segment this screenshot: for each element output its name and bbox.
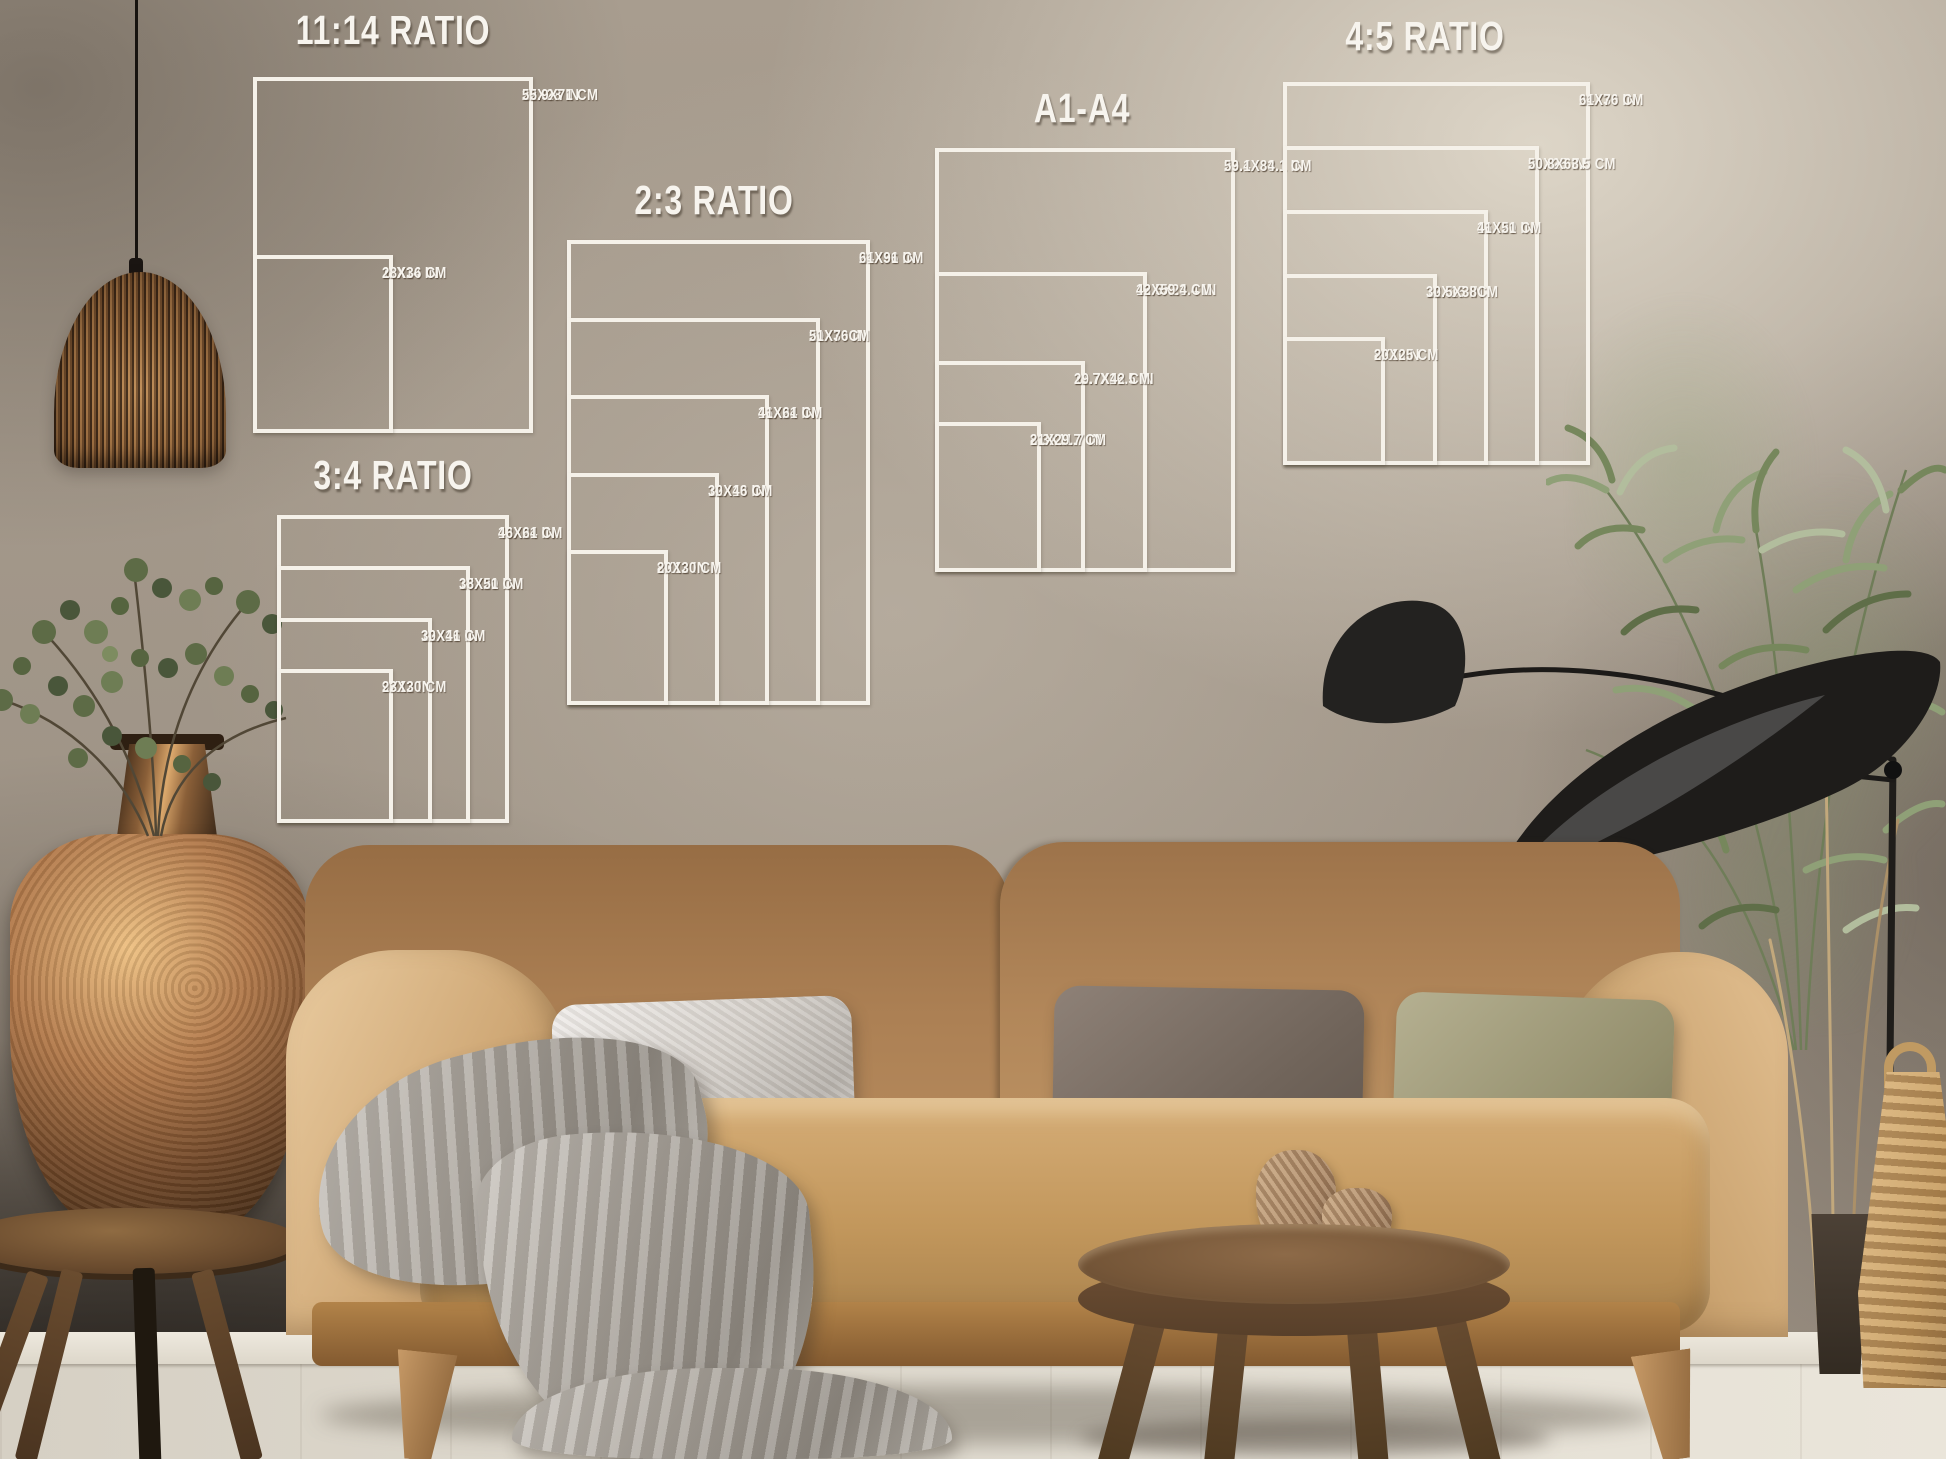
coffee-table	[0, 0, 1946, 1459]
table-top	[1078, 1224, 1510, 1304]
living-room-scene: 11:14 RATIO22X28 IN55.9X71 CM11X14 IN28X…	[0, 0, 1946, 1459]
